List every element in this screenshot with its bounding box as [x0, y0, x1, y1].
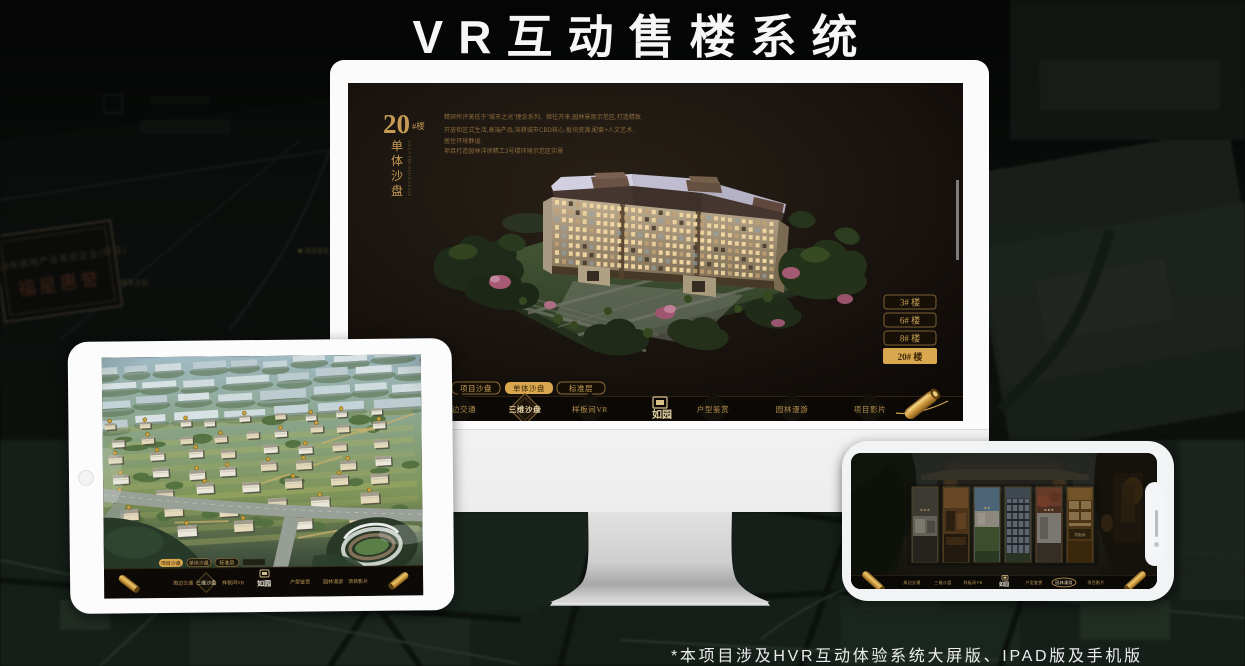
- svg-text:8# 楼: 8# 楼: [900, 333, 920, 344]
- svg-text:福星惠誉: 福星惠誉: [305, 247, 329, 255]
- svg-text:VILLA THE GOOD CLASS: VILLA THE GOOD CLASS: [407, 140, 412, 196]
- svg-text:三维沙盘: 三维沙盘: [509, 404, 541, 414]
- svg-text:沙: 沙: [391, 169, 403, 183]
- svg-text:体: 体: [391, 154, 403, 168]
- svg-text:3# 楼: 3# 楼: [900, 297, 920, 308]
- svg-text:城市之光: 城市之光: [120, 278, 148, 287]
- svg-text:精研所评美低于"城市之光"理念系列、继往开来,园林景观示范区: 精研所评美低于"城市之光"理念系列、继往开来,园林景观示范区,打造精致: [444, 113, 641, 121]
- svg-text:20# 楼: 20# 楼: [898, 351, 923, 362]
- svg-text:开放街区式生活,高端产品,深耕城市CBD核心,板块资源,配套: 开放街区式生活,高端产品,深耕城市CBD核心,板块资源,配套+人文艺术,: [444, 126, 634, 134]
- svg-text:项目打造园林洋房精工3号楼环境示范区实景: 项目打造园林洋房精工3号楼环境示范区实景: [444, 147, 563, 155]
- svg-text:标准层: 标准层: [219, 559, 234, 566]
- svg-text:园林漫游: 园林漫游: [776, 404, 808, 414]
- svg-text:盘: 盘: [391, 183, 403, 198]
- svg-text:园林漫游: 园林漫游: [1055, 579, 1072, 585]
- svg-text:单: 单: [391, 139, 403, 153]
- svg-text:如园: 如园: [257, 579, 271, 588]
- svg-text:样板间VR: 样板间VR: [963, 579, 982, 585]
- svg-text:#楼: #楼: [412, 121, 425, 131]
- svg-text:三维沙盘: 三维沙盘: [934, 579, 951, 585]
- svg-text:项目沙盘: 项目沙盘: [161, 560, 181, 567]
- svg-text:标准层: 标准层: [569, 383, 593, 393]
- svg-text:样板间VR: 样板间VR: [572, 404, 608, 414]
- svg-text:项目影片: 项目影片: [854, 404, 886, 414]
- svg-text:居住环境静谧:: 居住环境静谧:: [444, 137, 483, 145]
- svg-text:单体沙盘: 单体沙盘: [513, 383, 545, 393]
- svg-text:单体沙盘: 单体沙盘: [189, 560, 209, 567]
- svg-text:如园: 如园: [652, 408, 672, 421]
- svg-text:20: 20: [383, 109, 410, 139]
- svg-text:如园: 如园: [999, 581, 1009, 588]
- svg-text:户型鉴赏: 户型鉴赏: [697, 404, 729, 414]
- svg-text:户型鉴赏: 户型鉴赏: [1025, 579, 1042, 585]
- svg-text:项目沙盘: 项目沙盘: [460, 383, 492, 393]
- svg-text:6# 楼: 6# 楼: [900, 315, 920, 326]
- svg-text:项目影片: 项目影片: [1087, 579, 1104, 585]
- svg-text:■: ■: [298, 248, 302, 255]
- svg-text:周边交通: 周边交通: [903, 579, 920, 585]
